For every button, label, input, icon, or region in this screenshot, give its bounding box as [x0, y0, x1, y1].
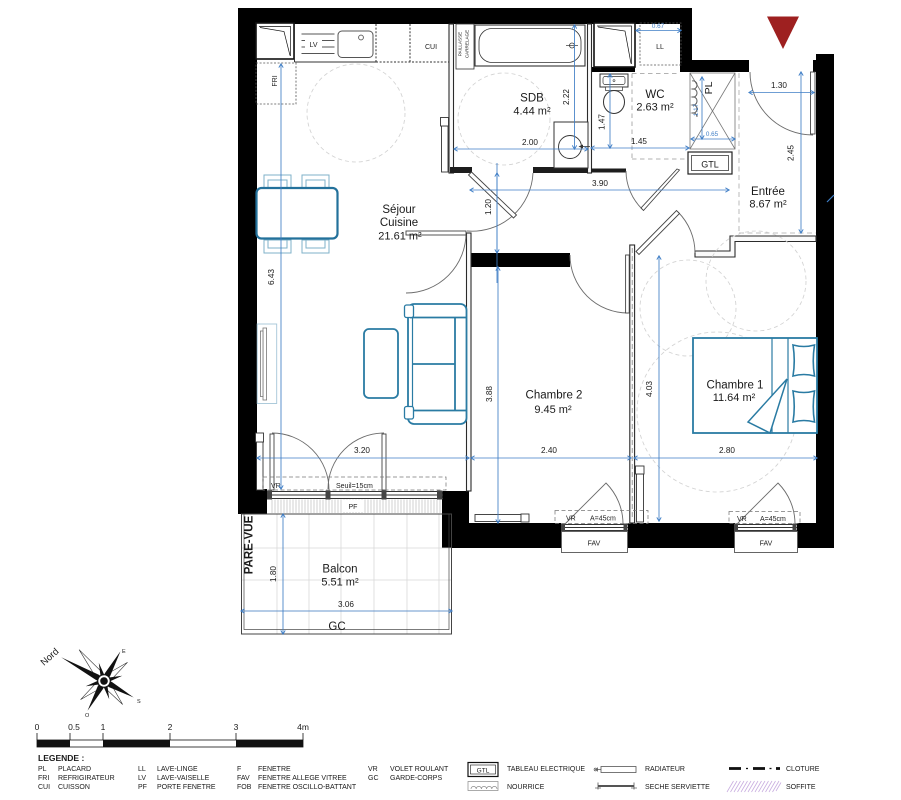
svg-text:FAV: FAV: [237, 775, 250, 782]
svg-text:A=45cm: A=45cm: [590, 516, 616, 523]
svg-text:CUI: CUI: [38, 784, 50, 791]
svg-text:WC: WC: [645, 89, 664, 101]
svg-text:REFRIGIRATEUR: REFRIGIRATEUR: [58, 775, 115, 782]
svg-text:S: S: [137, 699, 141, 705]
svg-text:LV: LV: [138, 775, 146, 782]
svg-text:FENETRE: FENETRE: [258, 766, 291, 773]
svg-text:FRI: FRI: [272, 75, 279, 86]
svg-text:LAVE-LINGE: LAVE-LINGE: [157, 766, 198, 773]
svg-text:PARE-VUE: PARE-VUE: [244, 515, 256, 574]
svg-text:LL: LL: [656, 44, 664, 51]
svg-text:0: 0: [35, 722, 40, 732]
svg-text:2.80: 2.80: [719, 446, 735, 455]
svg-text:2.40: 2.40: [541, 446, 557, 455]
svg-text:PL: PL: [38, 766, 47, 773]
svg-text:3.06: 3.06: [338, 600, 354, 609]
svg-text:0.67: 0.67: [652, 23, 665, 30]
svg-text:2.22: 2.22: [562, 89, 571, 105]
svg-text:A=45cm: A=45cm: [760, 516, 786, 523]
svg-text:NOURRICE: NOURRICE: [507, 784, 545, 791]
svg-text:PL: PL: [703, 81, 715, 94]
svg-text:11.64 m²: 11.64 m²: [713, 392, 756, 404]
svg-text:1: 1: [101, 722, 106, 732]
svg-text:CARRELAGE: CARRELAGE: [465, 30, 470, 58]
svg-text:6.43: 6.43: [267, 269, 276, 285]
svg-text:3.88: 3.88: [485, 386, 494, 402]
svg-text:2: 2: [168, 722, 173, 732]
svg-text:O: O: [85, 713, 90, 719]
svg-text:VOLET ROULANT: VOLET ROULANT: [390, 766, 449, 773]
svg-text:FRI: FRI: [38, 775, 49, 782]
svg-text:2.63 m²: 2.63 m²: [636, 102, 674, 114]
svg-text:Entrée: Entrée: [751, 186, 785, 198]
svg-text:VR: VR: [368, 766, 378, 773]
svg-text:F: F: [237, 766, 241, 773]
svg-text:Séjour: Séjour: [382, 204, 415, 216]
svg-text:CLOTURE: CLOTURE: [786, 766, 820, 773]
svg-text:FENETRE OSCILLO-BATTANT: FENETRE OSCILLO-BATTANT: [258, 784, 357, 791]
svg-text:9.45 m²: 9.45 m²: [534, 404, 572, 416]
svg-text:SDB: SDB: [520, 93, 544, 105]
svg-text:LL: LL: [138, 766, 146, 773]
svg-text:Cuisine: Cuisine: [380, 217, 418, 229]
svg-text:CUI: CUI: [425, 44, 437, 51]
svg-text:FAV: FAV: [760, 541, 773, 548]
svg-text:PF: PF: [349, 504, 358, 511]
svg-text:1.20: 1.20: [484, 199, 493, 215]
svg-text:LEGENDE :: LEGENDE :: [38, 753, 84, 763]
svg-text:PAILLASSE: PAILLASSE: [458, 32, 463, 56]
svg-text:VR: VR: [566, 516, 576, 523]
svg-text:3.20: 3.20: [354, 446, 370, 455]
svg-text:0.65: 0.65: [706, 131, 719, 138]
svg-text:FENETRE ALLEGE VITREE: FENETRE ALLEGE VITREE: [258, 775, 347, 782]
svg-text:SECHE SERVIETTE: SECHE SERVIETTE: [645, 784, 710, 791]
svg-text:1.30: 1.30: [771, 81, 787, 90]
svg-text:PORTE FENETRE: PORTE FENETRE: [157, 784, 216, 791]
svg-text:3: 3: [234, 722, 239, 732]
svg-text:LV: LV: [309, 42, 317, 49]
svg-text:VR: VR: [271, 483, 281, 490]
svg-text:FAV: FAV: [588, 541, 601, 548]
svg-text:3.90: 3.90: [592, 179, 608, 188]
svg-text:GARDE-CORPS: GARDE-CORPS: [390, 775, 442, 782]
svg-text:TABLEAU ELECTRIQUE: TABLEAU ELECTRIQUE: [507, 766, 585, 773]
svg-text:RADIATEUR: RADIATEUR: [645, 766, 685, 773]
svg-text:4.44 m²: 4.44 m²: [513, 106, 551, 118]
svg-text:0.5: 0.5: [68, 722, 80, 732]
svg-text:1.47: 1.47: [598, 114, 607, 130]
svg-text:CUISSON: CUISSON: [58, 784, 90, 791]
svg-text:GC: GC: [328, 621, 345, 633]
svg-text:LAVE-VAISELLE: LAVE-VAISELLE: [157, 775, 210, 782]
svg-text:GTL: GTL: [701, 160, 719, 170]
svg-text:8.67 m²: 8.67 m²: [749, 199, 787, 211]
svg-text:PF: PF: [138, 784, 147, 791]
svg-text:2.00: 2.00: [522, 138, 538, 147]
svg-text:1.80: 1.80: [269, 566, 278, 582]
svg-text:1.45: 1.45: [631, 137, 647, 146]
svg-text:E: E: [122, 649, 126, 655]
svg-text:Chambre 2: Chambre 2: [526, 390, 583, 402]
svg-text:FOB: FOB: [237, 784, 252, 791]
svg-text:Chambre 1: Chambre 1: [707, 380, 764, 392]
svg-text:VR: VR: [737, 516, 747, 523]
svg-text:SOFFITE: SOFFITE: [786, 784, 816, 791]
svg-text:4m: 4m: [297, 722, 309, 732]
svg-text:GC: GC: [368, 775, 379, 782]
svg-text:4.03: 4.03: [645, 381, 654, 397]
svg-text:2.45: 2.45: [787, 145, 796, 161]
svg-text:GTL: GTL: [477, 768, 490, 775]
svg-text:5.51 m²: 5.51 m²: [321, 577, 359, 589]
svg-text:Seuil=15cm: Seuil=15cm: [336, 483, 373, 490]
svg-text:PLACARD: PLACARD: [58, 766, 91, 773]
svg-text:21.61 m²: 21.61 m²: [378, 231, 422, 243]
svg-text:Balcon: Balcon: [322, 564, 357, 576]
svg-text:1.17: 1.17: [693, 103, 700, 116]
